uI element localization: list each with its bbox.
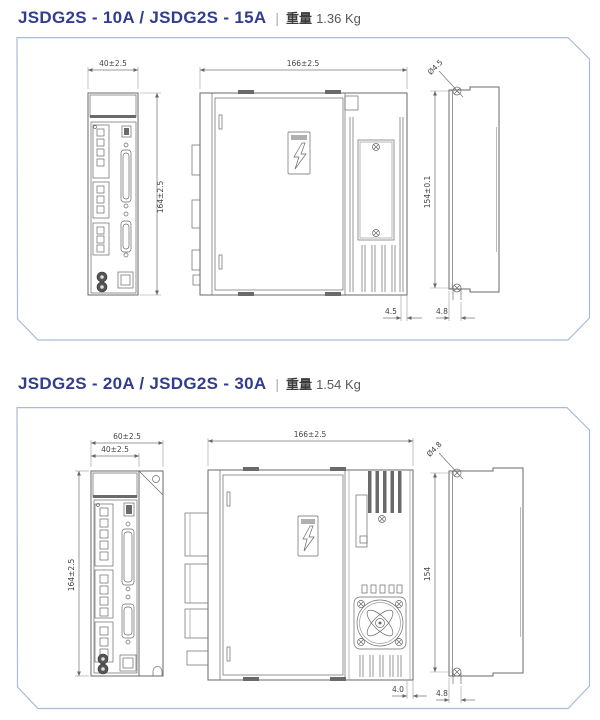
side-view-2: 166±2.5 [185,430,427,699]
weight-label-2: 重量 [286,377,312,392]
screw-icon [373,144,380,151]
dim-front-width-1: 40±2.5 [99,59,127,68]
cooling-fan-icon [354,597,406,649]
dim-side-width-1: 166±2.5 [287,59,320,68]
dim-mount-pitch-2: 154 [423,567,432,582]
title-separator: | [275,376,279,392]
dim-side-bottom-offset-1: 4.5 [385,307,397,316]
front-view-2: 60±2.5 40±2.5 [67,432,163,676]
dim-front-height-2: 164±2.5 [67,559,76,592]
screw-icon [379,516,386,523]
screw-icon [373,230,380,237]
dim-front-outer-width-2: 60±2.5 [113,432,141,441]
model-name-1: JSDG2S - 10A / JSDG2S - 15A [18,8,266,27]
side-view-1: 166±2.5 [192,59,422,321]
dim-mount-slot-2: 4.8 [436,689,448,698]
front-view-1: 40±2.5 164± [88,59,165,295]
dim-mount-pitch-1: 154±0.1 [423,176,432,209]
dim-side-bottom-offset-2: 4.0 [392,685,404,694]
warning-label-icon [298,516,318,556]
model-name-2: JSDG2S - 20A / JSDG2S - 30A [18,374,266,393]
dimension-drawing-panel-1: 40±2.5 164± [0,37,600,343]
dim-side-width-2: 166±2.5 [294,430,327,439]
section-title-1: JSDG2S - 10A / JSDG2S - 15A|重量1.36 Kg [18,8,361,28]
dim-mount-slot-1: 4.8 [436,307,448,316]
warning-label-icon [288,132,310,174]
weight-value-1: 1.36 Kg [316,11,361,26]
dimension-drawing-panel-2: 60±2.5 40±2.5 [0,407,600,711]
mounting-view-2: 154 Ø4.8 4.8 [423,440,523,703]
mounting-slot-icon [453,284,461,300]
title-separator: | [275,10,279,26]
dim-mount-hole-2: Ø4.8 [425,440,444,459]
weight-value-2: 1.54 Kg [316,377,361,392]
weight-label-1: 重量 [286,11,312,26]
mounting-view-1: 154±0.1 Ø4.5 4.8 [423,58,499,321]
dim-front-width-2: 40±2.5 [101,445,129,454]
dim-front-height-1: 164±2.5 [156,181,165,214]
section-title-2: JSDG2S - 20A / JSDG2S - 30A|重量1.54 Kg [18,374,361,394]
